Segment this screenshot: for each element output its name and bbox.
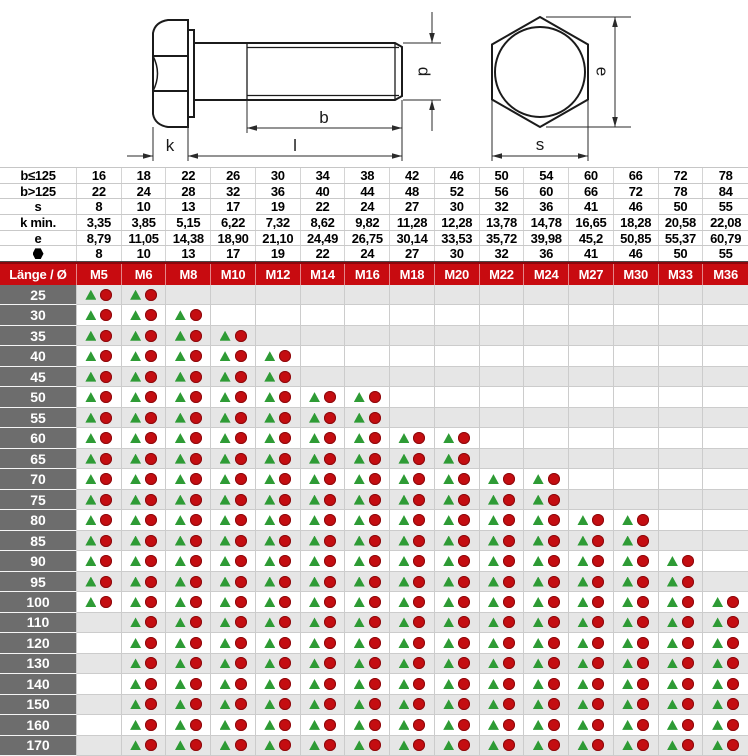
triangle-icon (443, 536, 454, 546)
circle-icon (682, 698, 694, 710)
spec-value: 55 (703, 199, 748, 214)
availability-cell (256, 572, 301, 592)
triangle-icon (488, 495, 499, 505)
circle-icon (369, 412, 381, 424)
circle-icon (324, 473, 336, 485)
dim-label-d: d (415, 67, 434, 76)
bolt-side-view (153, 20, 402, 127)
circle-icon (190, 514, 202, 526)
triangle-icon (622, 679, 633, 689)
triangle-icon (354, 413, 365, 423)
triangle-icon (175, 495, 186, 505)
availability-cell (77, 469, 122, 489)
table-row: 25 (0, 285, 748, 305)
column-header-m10: M10 (211, 264, 256, 285)
triangle-icon (398, 495, 409, 505)
circle-icon (413, 473, 425, 485)
triangle-icon (712, 597, 723, 607)
availability-cell (659, 572, 704, 592)
availability-cell (77, 305, 122, 325)
availability-cell (301, 674, 346, 694)
circle-icon (145, 657, 157, 669)
triangle-icon (667, 740, 678, 750)
availability-cell (211, 531, 256, 551)
triangle-icon (354, 740, 365, 750)
spec-row: b>125222428323640444852566066727884 (0, 184, 748, 200)
triangle-icon (309, 638, 320, 648)
spec-value: 14,38 (166, 231, 211, 246)
availability-cell (166, 572, 211, 592)
availability-cell (122, 572, 167, 592)
triangle-icon (175, 536, 186, 546)
circle-icon (637, 719, 649, 731)
availability-cell (614, 449, 659, 469)
circle-icon (279, 678, 291, 690)
circle-icon (548, 698, 560, 710)
triangle-icon (130, 331, 141, 341)
availability-cell (256, 531, 301, 551)
circle-icon (324, 678, 336, 690)
spec-row-label: k min. (0, 215, 77, 230)
technical-drawing: k l b d e s (0, 0, 748, 167)
availability-cell (703, 469, 748, 489)
circle-icon (190, 391, 202, 403)
availability-cell (659, 305, 704, 325)
availability-cell (659, 715, 704, 735)
column-header-m30: M30 (614, 264, 659, 285)
availability-cell (122, 592, 167, 612)
availability-cell (122, 674, 167, 694)
triangle-icon (220, 720, 231, 730)
availability-cell (211, 367, 256, 387)
availability-cell (122, 346, 167, 366)
triangle-icon (712, 617, 723, 627)
availability-cell (524, 449, 569, 469)
triangle-icon (533, 720, 544, 730)
circle-icon (279, 453, 291, 465)
table-row: 160 (0, 715, 748, 735)
triangle-icon (354, 474, 365, 484)
triangle-icon (443, 597, 454, 607)
triangle-icon (264, 372, 275, 382)
triangle-icon (622, 638, 633, 648)
availability-cell (569, 469, 614, 489)
circle-icon (548, 719, 560, 731)
availability-cell (211, 551, 256, 571)
circle-icon (548, 739, 560, 751)
availability-cell (390, 285, 435, 305)
availability-cell (256, 490, 301, 510)
triangle-icon (264, 351, 275, 361)
availability-cell (659, 428, 704, 448)
availability-cell (659, 408, 704, 428)
availability-cell (77, 408, 122, 428)
circle-icon (727, 657, 739, 669)
table-row: 140 (0, 674, 748, 694)
circle-icon (279, 637, 291, 649)
triangle-icon (443, 474, 454, 484)
triangle-icon (667, 577, 678, 587)
availability-cell (435, 428, 480, 448)
spec-value: 72 (614, 184, 659, 199)
triangle-icon (130, 474, 141, 484)
availability-cell (166, 510, 211, 530)
triangle-icon (175, 474, 186, 484)
availability-cell (77, 285, 122, 305)
table-row: 120 (0, 633, 748, 653)
circle-icon (279, 473, 291, 485)
circle-icon (145, 576, 157, 588)
circle-icon (145, 596, 157, 608)
availability-cell (211, 346, 256, 366)
availability-cell (256, 367, 301, 387)
triangle-icon (264, 679, 275, 689)
availability-cell (614, 613, 659, 633)
circle-icon (100, 473, 112, 485)
column-header-m36: M36 (703, 264, 748, 285)
availability-cell (614, 469, 659, 489)
triangle-icon (577, 638, 588, 648)
availability-cell (569, 592, 614, 612)
availability-cell (166, 367, 211, 387)
availability-cell (614, 285, 659, 305)
triangle-icon (488, 638, 499, 648)
circle-icon (592, 535, 604, 547)
hex-head-view (492, 17, 588, 127)
triangle-icon (175, 392, 186, 402)
availability-cell (390, 449, 435, 469)
availability-cell (614, 305, 659, 325)
availability-cell (122, 736, 167, 756)
circle-icon (279, 514, 291, 526)
availability-cell (390, 715, 435, 735)
availability-cell (390, 551, 435, 571)
circle-icon (145, 330, 157, 342)
availability-cell (614, 531, 659, 551)
spec-value: 52 (435, 184, 480, 199)
spec-value: 32 (480, 246, 525, 261)
spec-value: 11,05 (122, 231, 167, 246)
availability-cell (435, 695, 480, 715)
triangle-icon (175, 556, 186, 566)
circle-icon (503, 616, 515, 628)
availability-cell (435, 572, 480, 592)
triangle-icon (354, 679, 365, 689)
spec-value: 55,37 (659, 231, 704, 246)
triangle-icon (220, 474, 231, 484)
circle-icon (413, 616, 425, 628)
triangle-icon (667, 617, 678, 627)
circle-icon (279, 698, 291, 710)
circle-icon (190, 657, 202, 669)
availability-cell (659, 695, 704, 715)
table-row: 90 (0, 551, 748, 571)
triangle-icon (443, 740, 454, 750)
triangle-icon (220, 413, 231, 423)
availability-cell (211, 572, 256, 592)
circle-icon (548, 596, 560, 608)
availability-cell (345, 592, 390, 612)
circle-icon (548, 637, 560, 649)
availability-cell (256, 510, 301, 530)
triangle-icon (175, 617, 186, 627)
spec-value: 11,28 (390, 215, 435, 230)
circle-icon (235, 371, 247, 383)
availability-cell (390, 613, 435, 633)
availability-cell (345, 449, 390, 469)
availability-cell (703, 736, 748, 756)
triangle-icon (533, 679, 544, 689)
triangle-icon (577, 597, 588, 607)
triangle-icon (175, 515, 186, 525)
spec-value: 41 (569, 199, 614, 214)
column-header-m20: M20 (435, 264, 480, 285)
availability-cell (122, 285, 167, 305)
triangle-icon (488, 699, 499, 709)
triangle-icon (130, 597, 141, 607)
availability-cell (256, 408, 301, 428)
circle-icon (324, 432, 336, 444)
spec-value: 13 (166, 246, 211, 261)
spec-value: 41 (569, 246, 614, 261)
triangle-icon (175, 679, 186, 689)
spec-row-label: b>125 (0, 184, 77, 199)
availability-cell (301, 387, 346, 407)
triangle-icon (85, 556, 96, 566)
triangle-icon (577, 556, 588, 566)
triangle-icon (220, 515, 231, 525)
triangle-icon (533, 556, 544, 566)
availability-cell (122, 428, 167, 448)
availability-cell (703, 367, 748, 387)
circle-icon (190, 309, 202, 321)
circle-icon (190, 637, 202, 649)
dim-label-e: e (593, 67, 612, 76)
circle-icon (548, 473, 560, 485)
circle-icon (458, 637, 470, 649)
availability-cell (256, 285, 301, 305)
availability-cell (301, 613, 346, 633)
availability-cell (480, 285, 525, 305)
availability-cell (345, 531, 390, 551)
spec-value: 10 (122, 199, 167, 214)
triangle-icon (398, 454, 409, 464)
triangle-icon (398, 433, 409, 443)
triangle-icon (533, 699, 544, 709)
spec-value: 26 (211, 168, 256, 183)
availability-cell (166, 408, 211, 428)
availability-cell (703, 654, 748, 674)
triangle-icon (354, 495, 365, 505)
circle-icon (369, 576, 381, 588)
circle-icon (279, 555, 291, 567)
circle-icon (279, 412, 291, 424)
triangle-icon (264, 617, 275, 627)
availability-cell (703, 674, 748, 694)
availability-cell (77, 531, 122, 551)
availability-cell (390, 469, 435, 489)
availability-cell (524, 326, 569, 346)
row-length-label: 50 (0, 387, 77, 407)
triangle-icon (264, 638, 275, 648)
circle-icon (235, 576, 247, 588)
circle-icon (279, 432, 291, 444)
availability-cell (345, 613, 390, 633)
availability-cell (614, 551, 659, 571)
triangle-icon (712, 658, 723, 668)
triangle-icon (309, 454, 320, 464)
table-row: 85 (0, 531, 748, 551)
availability-cell (345, 572, 390, 592)
availability-cell (435, 469, 480, 489)
triangle-icon (220, 597, 231, 607)
availability-cell (256, 428, 301, 448)
triangle-icon (667, 658, 678, 668)
availability-cell (524, 633, 569, 653)
circle-icon (279, 596, 291, 608)
triangle-icon (130, 392, 141, 402)
circle-icon (190, 616, 202, 628)
triangle-icon (309, 740, 320, 750)
circle-icon (682, 678, 694, 690)
availability-cell (569, 531, 614, 551)
circle-icon (100, 514, 112, 526)
circle-icon (548, 555, 560, 567)
availability-cell (77, 715, 122, 735)
circle-icon (145, 289, 157, 301)
circle-icon (235, 453, 247, 465)
availability-cell (77, 572, 122, 592)
spec-value: 30 (435, 246, 480, 261)
circle-icon (100, 330, 112, 342)
availability-cell (524, 305, 569, 325)
table-row: 50 (0, 387, 748, 407)
circle-icon (190, 350, 202, 362)
spec-value: 60 (524, 184, 569, 199)
triangle-icon (309, 433, 320, 443)
triangle-icon (354, 536, 365, 546)
availability-cell (524, 408, 569, 428)
table-row: 60 (0, 428, 748, 448)
spec-value: 36 (524, 199, 569, 214)
circle-icon (100, 289, 112, 301)
circle-icon (369, 678, 381, 690)
circle-icon (279, 391, 291, 403)
availability-cell (480, 633, 525, 653)
availability-cell (569, 387, 614, 407)
availability-cell (480, 654, 525, 674)
circle-icon (145, 412, 157, 424)
circle-icon (458, 494, 470, 506)
availability-cell (211, 633, 256, 653)
availability-cell (569, 715, 614, 735)
column-header-m12: M12 (256, 264, 301, 285)
circle-icon (413, 719, 425, 731)
availability-cell (122, 408, 167, 428)
availability-cell (569, 490, 614, 510)
circle-icon (413, 698, 425, 710)
availability-cell (301, 510, 346, 530)
spec-value: 14,78 (524, 215, 569, 230)
spec-value: 17 (211, 199, 256, 214)
availability-cell (524, 367, 569, 387)
circle-icon (145, 391, 157, 403)
circle-icon (324, 596, 336, 608)
spec-value: 7,32 (256, 215, 301, 230)
table-row: 100 (0, 592, 748, 612)
spec-value: 32 (480, 199, 525, 214)
availability-cell (435, 510, 480, 530)
availability-cell (301, 449, 346, 469)
availability-cell (480, 346, 525, 366)
circle-icon (637, 698, 649, 710)
row-length-label: 130 (0, 654, 77, 674)
triangle-icon (264, 536, 275, 546)
triangle-icon (398, 617, 409, 627)
spec-value: 24 (345, 246, 390, 261)
triangle-icon (488, 556, 499, 566)
circle-icon (682, 616, 694, 628)
row-length-label: 160 (0, 715, 77, 735)
spec-value: 22 (166, 168, 211, 183)
availability-cell (122, 613, 167, 633)
spec-value: 17 (211, 246, 256, 261)
availability-cell (703, 326, 748, 346)
availability-cell (211, 449, 256, 469)
availability-cell (524, 674, 569, 694)
triangle-icon (354, 597, 365, 607)
spec-value: 18,90 (211, 231, 256, 246)
availability-cell (122, 387, 167, 407)
triangle-icon (175, 310, 186, 320)
circle-icon (503, 678, 515, 690)
availability-cell (480, 592, 525, 612)
triangle-icon (264, 720, 275, 730)
spec-row: e8,7911,0514,3818,9021,1024,4926,7530,14… (0, 231, 748, 247)
availability-cell (166, 387, 211, 407)
circle-icon (458, 719, 470, 731)
availability-cell (211, 408, 256, 428)
availability-cell (211, 428, 256, 448)
circle-icon (100, 555, 112, 567)
availability-cell (122, 531, 167, 551)
availability-cell (211, 469, 256, 489)
triangle-icon (622, 556, 633, 566)
availability-cell (256, 551, 301, 571)
circle-icon (682, 719, 694, 731)
availability-cell (569, 736, 614, 756)
circle-icon (190, 473, 202, 485)
circle-icon (190, 412, 202, 424)
circle-icon (592, 698, 604, 710)
triangle-icon (264, 699, 275, 709)
triangle-icon (220, 638, 231, 648)
availability-cell (301, 469, 346, 489)
triangle-icon (622, 597, 633, 607)
circle-icon (235, 473, 247, 485)
availability-cell (345, 674, 390, 694)
triangle-icon (264, 474, 275, 484)
triangle-icon (443, 515, 454, 525)
spec-value: 36 (524, 246, 569, 261)
availability-cell (480, 408, 525, 428)
availability-cell (390, 531, 435, 551)
circle-icon (235, 616, 247, 628)
spec-value: 39,98 (524, 231, 569, 246)
availability-cell (569, 674, 614, 694)
hexagon-outline (492, 17, 588, 127)
availability-cell (166, 531, 211, 551)
